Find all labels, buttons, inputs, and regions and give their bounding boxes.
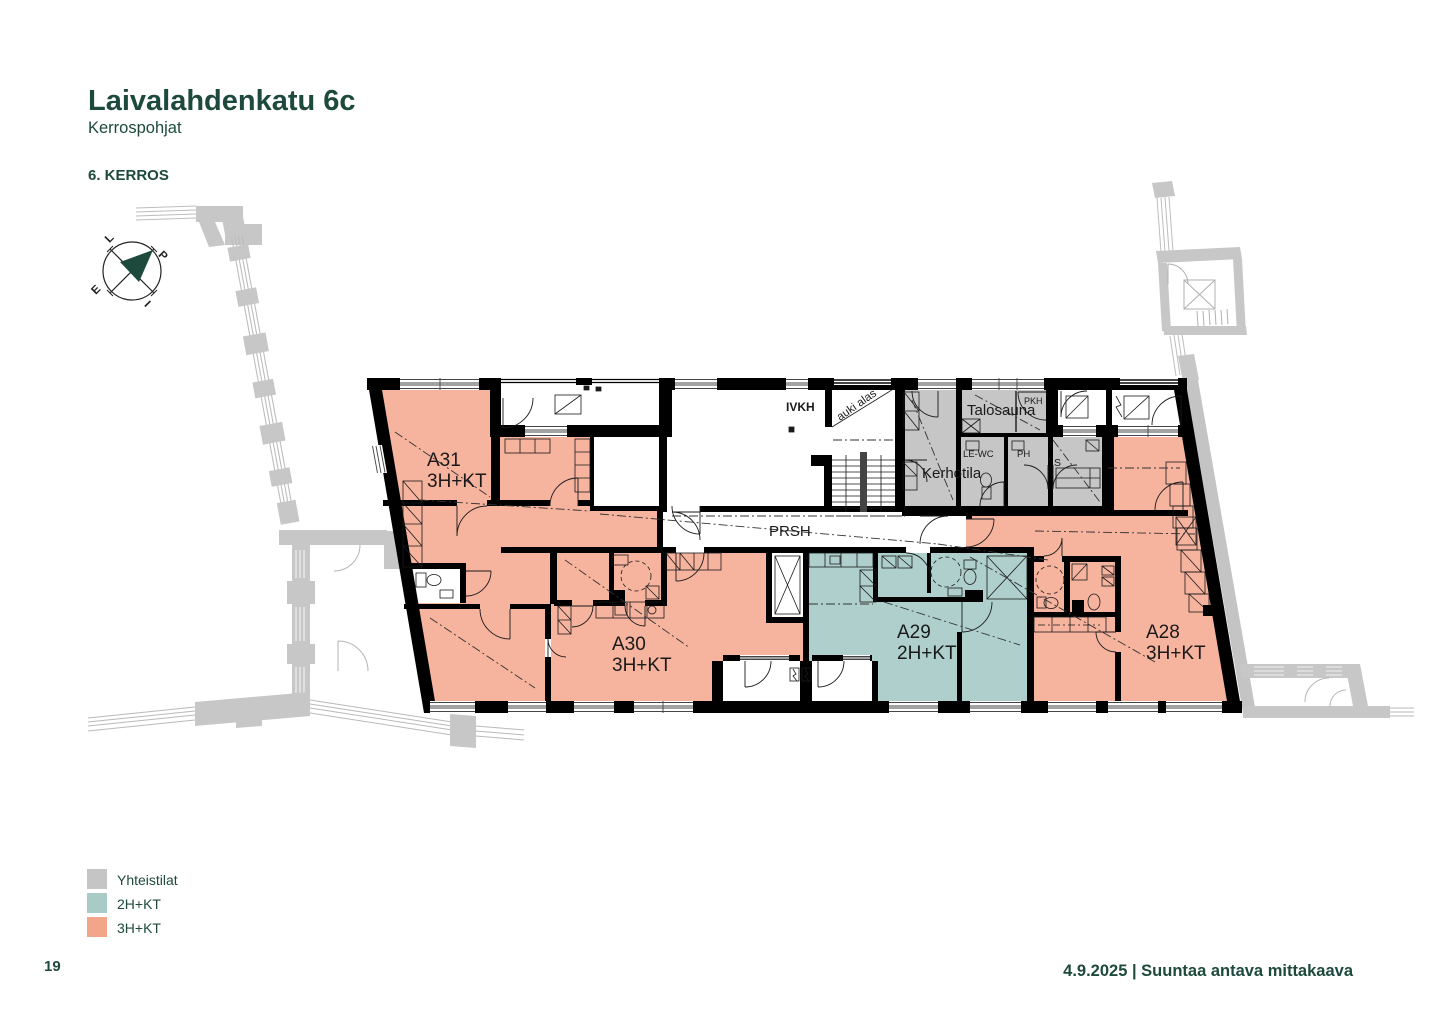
svg-text:3H+KT: 3H+KT: [612, 655, 672, 676]
svg-text:3H+KT: 3H+KT: [117, 920, 161, 936]
svg-text:3H+KT: 3H+KT: [1146, 643, 1206, 664]
svg-text:PRSH: PRSH: [769, 523, 811, 540]
svg-text:19: 19: [44, 958, 61, 975]
svg-text:PKH: PKH: [1024, 396, 1043, 406]
svg-text:S: S: [1054, 457, 1061, 469]
svg-text:Kerhotila: Kerhotila: [922, 465, 982, 482]
svg-text:4.9.2025 | Suuntaa antava mitt: 4.9.2025 | Suuntaa antava mittakaava: [1063, 962, 1354, 980]
svg-text:LE-WC: LE-WC: [963, 449, 994, 460]
svg-text:A28: A28: [1146, 622, 1180, 643]
svg-text:6. KERROS: 6. KERROS: [88, 167, 169, 184]
svg-text:A29: A29: [897, 622, 931, 643]
svg-text:A31: A31: [427, 450, 461, 471]
svg-text:2H+KT: 2H+KT: [117, 896, 161, 912]
svg-text:Laivalahdenkatu 6c: Laivalahdenkatu 6c: [88, 85, 356, 117]
svg-text:Yhteistilat: Yhteistilat: [117, 872, 178, 888]
svg-text:2H+KT: 2H+KT: [897, 643, 957, 664]
svg-text:A30: A30: [612, 634, 646, 655]
svg-text:3H+KT: 3H+KT: [427, 471, 487, 492]
svg-text:IVKH: IVKH: [786, 400, 815, 414]
svg-text:Kerrospohjat: Kerrospohjat: [88, 119, 182, 137]
svg-text:PH: PH: [1017, 449, 1030, 460]
